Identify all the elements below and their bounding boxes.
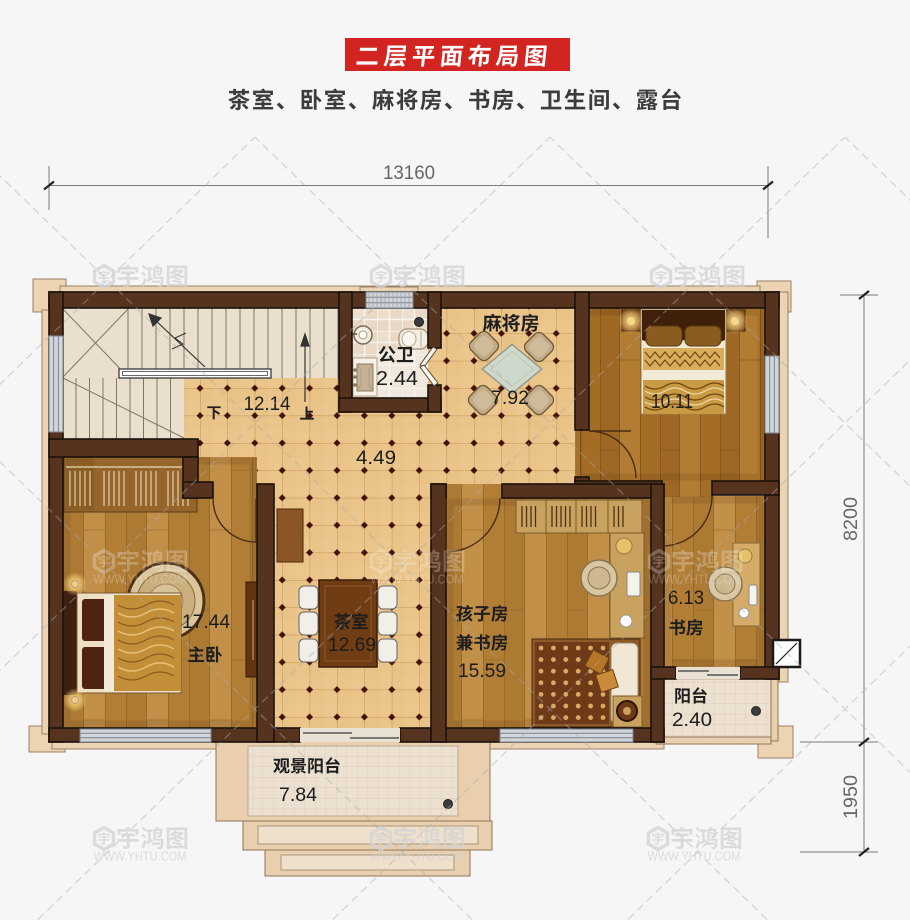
svg-text:8200: 8200 [840,497,862,541]
svg-text:WWW.YHTU.COM: WWW.YHTU.COM [649,573,742,587]
svg-text:WWW.YHTU.COM: WWW.YHTU.COM [371,850,464,864]
svg-text:WWW.YHTU.COM: WWW.YHTU.COM [371,573,464,587]
svg-text:WWW.YHTU.COM: WWW.YHTU.COM [94,850,187,864]
svg-text:7.84: 7.84 [279,785,317,806]
svg-text:12.69: 12.69 [328,635,376,656]
svg-text:13160: 13160 [383,162,435,184]
svg-text:2.44: 2.44 [376,367,418,390]
svg-text:7.92: 7.92 [491,388,529,409]
svg-text:10.11: 10.11 [651,390,693,413]
svg-text:WWW.YHTU.COM: WWW.YHTU.COM [94,573,187,587]
svg-text:WWW.YHTU.COM: WWW.YHTU.COM [648,850,741,864]
svg-text:4.49: 4.49 [356,448,396,469]
svg-text:1950: 1950 [840,775,862,819]
svg-text:6.13: 6.13 [668,588,704,609]
svg-text:2.40: 2.40 [672,710,712,731]
svg-text:17.44: 17.44 [182,612,230,633]
svg-text:15.59: 15.59 [458,661,506,682]
